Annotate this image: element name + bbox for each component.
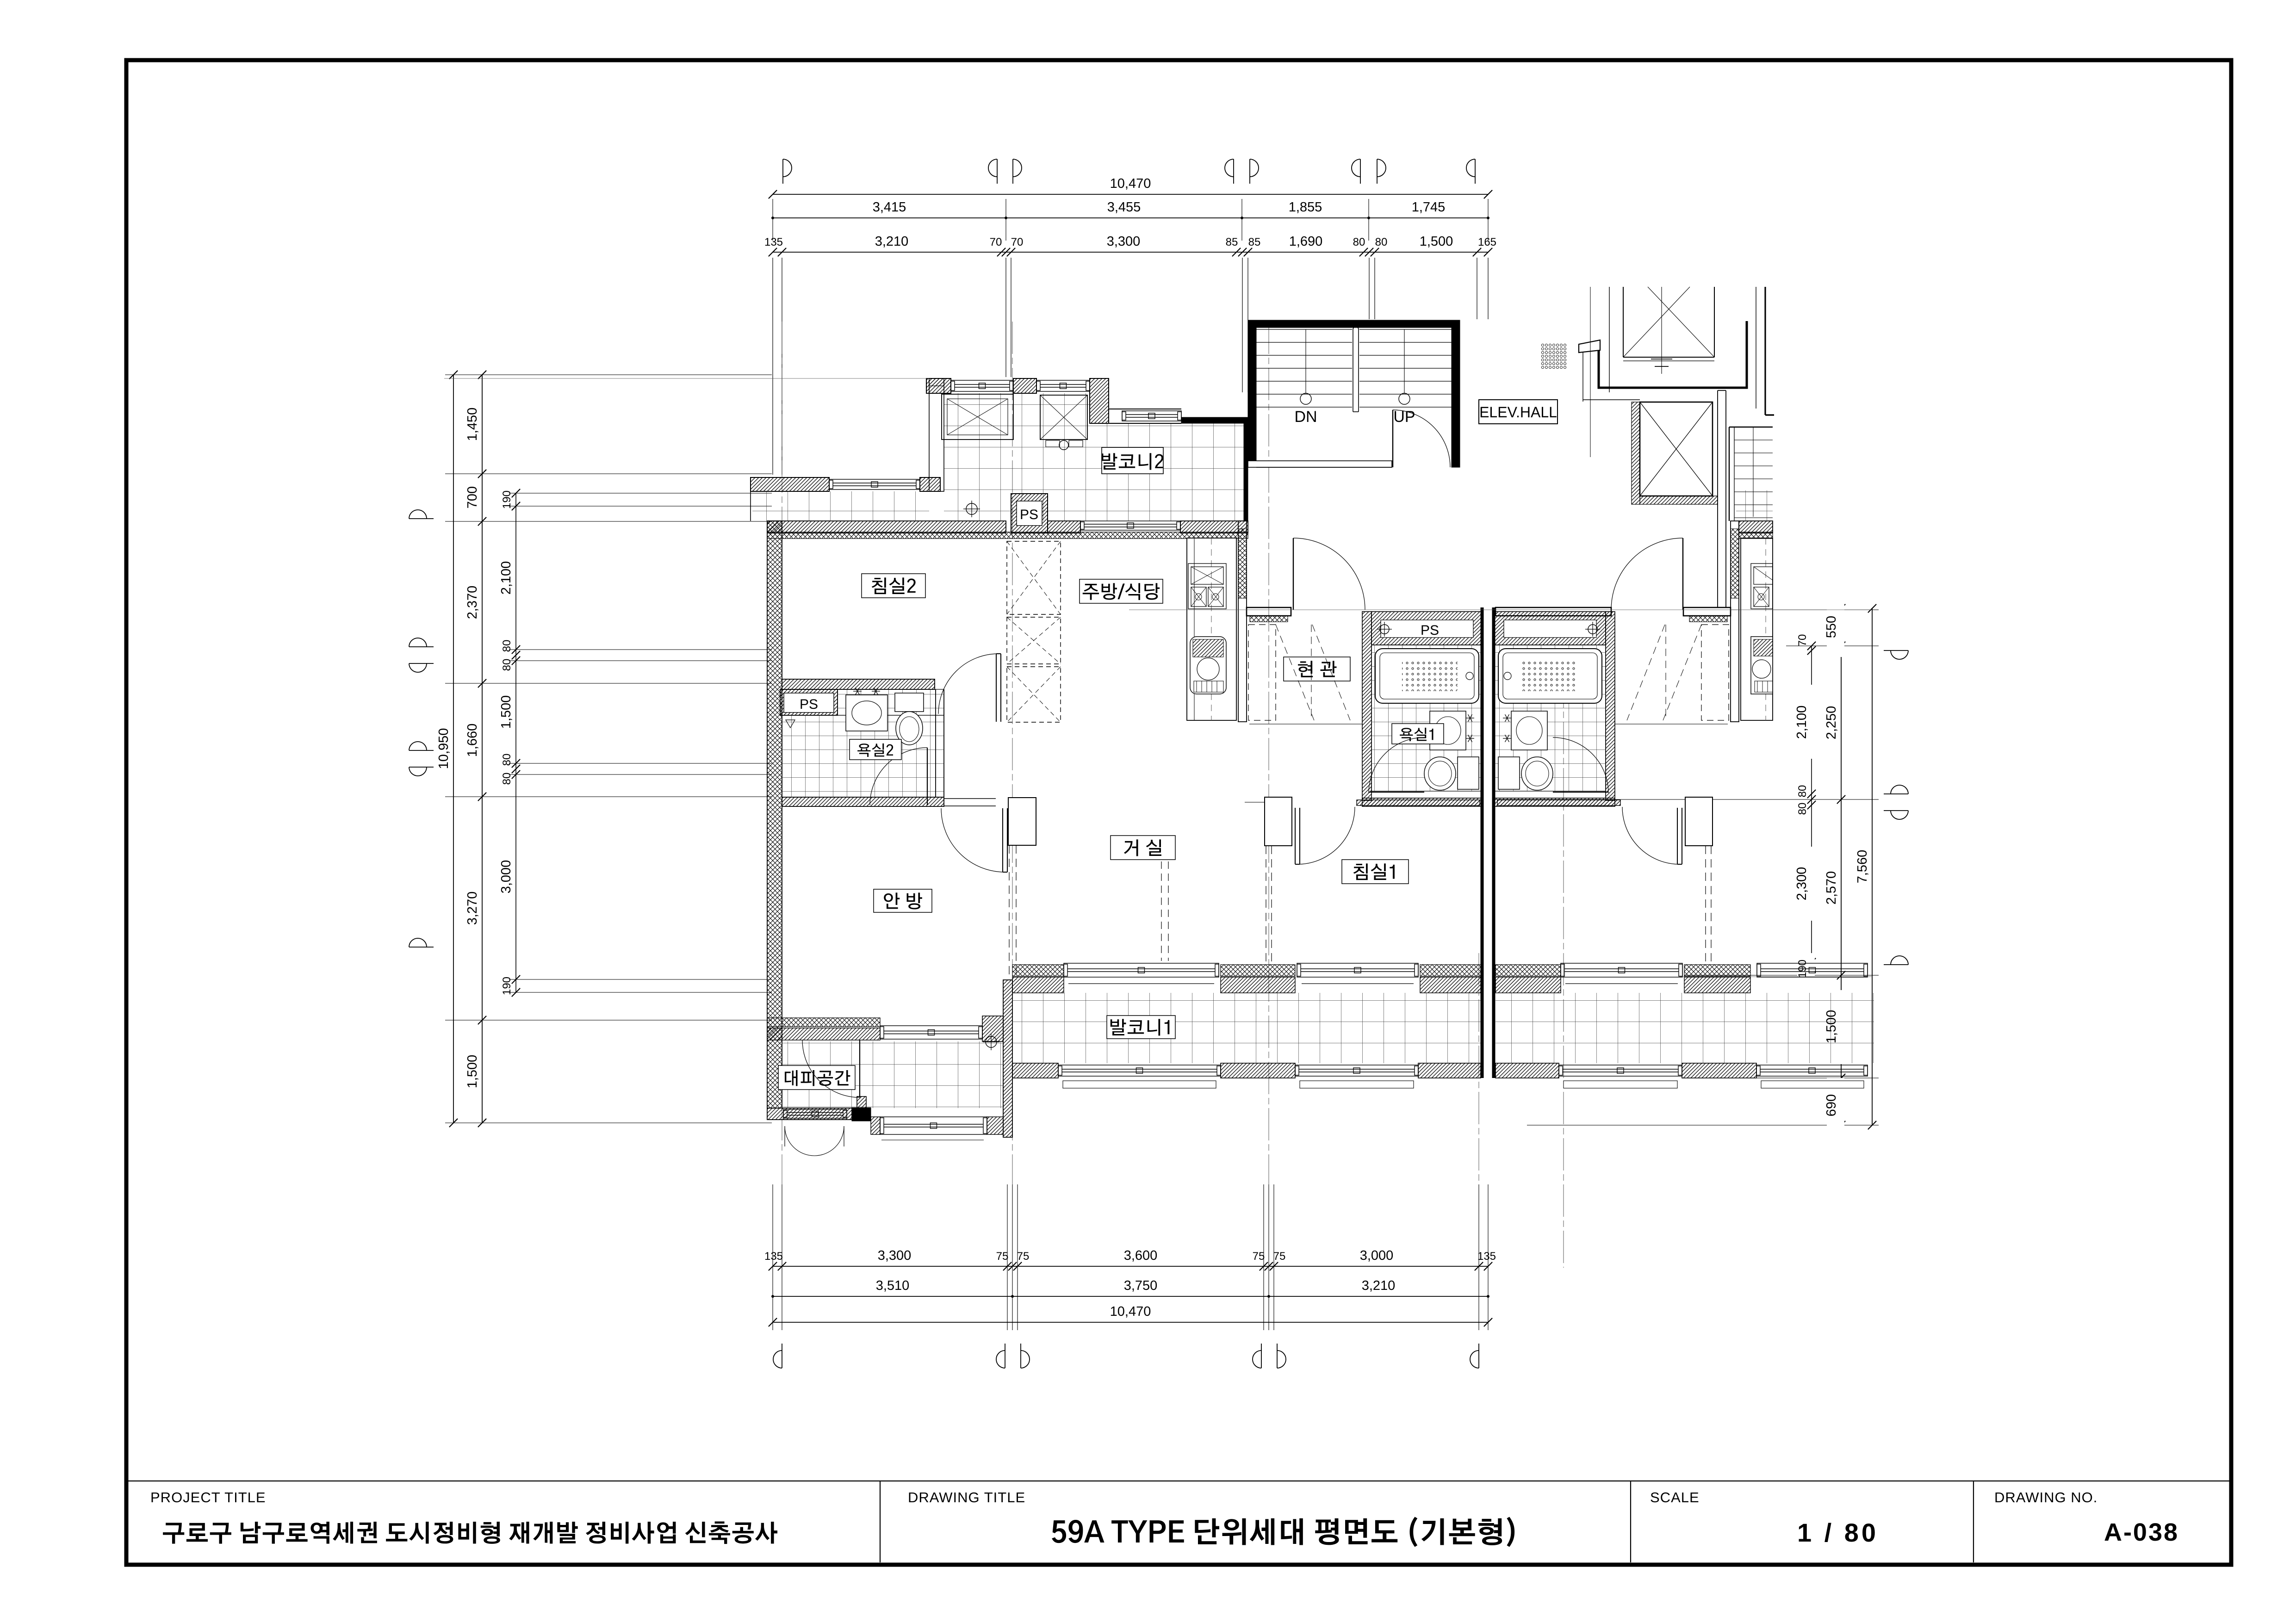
svg-text:165: 165	[1478, 236, 1496, 248]
svg-text:3,750: 3,750	[1124, 1278, 1158, 1293]
svg-text:190: 190	[501, 490, 513, 509]
svg-text:DRAWING NO.: DRAWING NO.	[1994, 1489, 2097, 1505]
svg-text:75: 75	[1273, 1250, 1286, 1263]
svg-text:85: 85	[1226, 236, 1238, 248]
svg-text:PS: PS	[1020, 507, 1038, 522]
svg-text:70: 70	[1011, 236, 1024, 248]
svg-text:550: 550	[1824, 616, 1839, 638]
svg-text:1,500: 1,500	[1420, 234, 1453, 249]
svg-text:3,415: 3,415	[873, 200, 906, 215]
svg-text:3,455: 3,455	[1107, 200, 1141, 215]
svg-text:10,470: 10,470	[1110, 1304, 1151, 1319]
svg-text:1,450: 1,450	[465, 408, 480, 441]
svg-text:70: 70	[1796, 634, 1809, 647]
svg-text:1,745: 1,745	[1412, 200, 1446, 215]
svg-text:PROJECT TITLE: PROJECT TITLE	[150, 1489, 266, 1505]
svg-text:85: 85	[1248, 236, 1261, 248]
svg-text:PS: PS	[800, 697, 818, 712]
svg-text:80: 80	[1353, 236, 1365, 248]
svg-text:80: 80	[501, 754, 513, 766]
svg-text:70: 70	[990, 236, 1002, 248]
svg-text:2,100: 2,100	[499, 561, 514, 595]
svg-text:3,000: 3,000	[1360, 1248, 1394, 1263]
svg-text:700: 700	[465, 486, 480, 508]
svg-text:135: 135	[1477, 1250, 1496, 1263]
svg-text:DN: DN	[1294, 408, 1317, 426]
svg-text:75: 75	[1253, 1250, 1265, 1263]
svg-text:3,270: 3,270	[465, 892, 480, 925]
svg-text:80: 80	[1796, 785, 1809, 798]
svg-text:SCALE: SCALE	[1650, 1489, 1700, 1505]
svg-text:1,500: 1,500	[465, 1055, 480, 1089]
svg-text:2,250: 2,250	[1824, 706, 1839, 740]
svg-text:3,510: 3,510	[876, 1278, 910, 1293]
svg-text:80: 80	[1375, 236, 1388, 248]
svg-text:75: 75	[996, 1250, 1009, 1263]
svg-text:UP: UP	[1393, 408, 1415, 426]
svg-text:1 / 80: 1 / 80	[1797, 1518, 1879, 1547]
svg-text:3,210: 3,210	[875, 234, 909, 249]
svg-text:PS: PS	[1421, 623, 1439, 638]
svg-text:135: 135	[764, 236, 783, 248]
svg-text:75: 75	[1017, 1250, 1030, 1263]
svg-text:3,300: 3,300	[1107, 234, 1141, 249]
svg-text:DRAWING TITLE: DRAWING TITLE	[908, 1489, 1025, 1505]
svg-text:3,000: 3,000	[499, 860, 514, 894]
svg-text:3,210: 3,210	[1362, 1278, 1396, 1293]
svg-text:1,660: 1,660	[465, 724, 480, 757]
svg-text:2,570: 2,570	[1824, 871, 1839, 905]
svg-text:10,950: 10,950	[436, 728, 451, 769]
svg-text:7,560: 7,560	[1855, 850, 1870, 884]
svg-text:3,300: 3,300	[878, 1248, 912, 1263]
svg-text:80: 80	[501, 659, 513, 671]
svg-text:1,500: 1,500	[499, 695, 514, 729]
svg-text:10,470: 10,470	[1110, 176, 1151, 191]
svg-text:1,855: 1,855	[1289, 200, 1322, 215]
svg-text:690: 690	[1824, 1094, 1839, 1116]
svg-text:135: 135	[764, 1250, 783, 1263]
svg-text:80: 80	[1796, 803, 1809, 815]
svg-text:190: 190	[501, 977, 513, 995]
svg-text:2,370: 2,370	[465, 586, 480, 619]
svg-text:1,690: 1,690	[1289, 234, 1323, 249]
svg-text:80: 80	[501, 773, 513, 785]
svg-text:A-038: A-038	[2104, 1518, 2179, 1546]
svg-text:2,300: 2,300	[1794, 867, 1809, 901]
svg-text:2,100: 2,100	[1794, 706, 1809, 739]
svg-text:80: 80	[501, 640, 513, 652]
svg-text:3,600: 3,600	[1124, 1248, 1158, 1263]
svg-text:ELEV.HALL: ELEV.HALL	[1479, 404, 1557, 421]
